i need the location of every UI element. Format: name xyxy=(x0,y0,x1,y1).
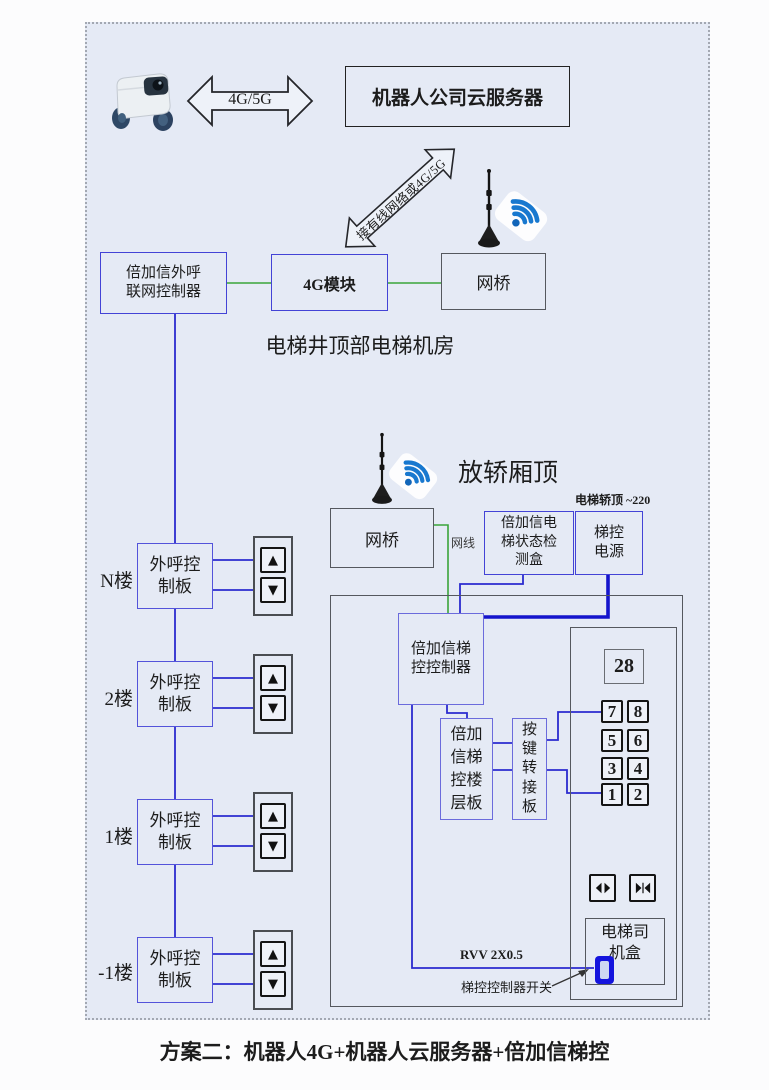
outcall-network-controller-box: 倍加信外呼 联网控制器 xyxy=(100,252,227,314)
down-triangle-icon: ▼ xyxy=(268,840,278,853)
down-call-button-1: ▼ xyxy=(260,833,286,859)
keypad-button-6: 6 xyxy=(627,729,649,752)
keypad-button-2: 2 xyxy=(627,783,649,806)
elevator-power-box: 梯控 电源 xyxy=(575,511,643,575)
keypad-button-3: 3 xyxy=(601,757,623,780)
machine-room-caption: 电梯井顶部电梯机房 xyxy=(250,330,470,360)
up-triangle-icon: ▲ xyxy=(268,672,278,685)
wire-spec-label: RVV 2X0.5 xyxy=(460,947,550,963)
bridge-box-car-top: 网桥 xyxy=(330,508,434,568)
controller-switch xyxy=(595,956,614,984)
down-triangle-icon: ▼ xyxy=(268,978,278,991)
robot-icon xyxy=(106,70,182,134)
floor-label-minus1: -1楼 xyxy=(88,958,133,985)
outcall-board-n: 外呼控 制板 xyxy=(137,543,213,609)
down-triangle-icon: ▼ xyxy=(268,702,278,715)
elevator-controller-box: 倍加信梯 控控制器 xyxy=(398,613,484,705)
open-door-button xyxy=(589,874,616,902)
floor-display: 28 xyxy=(604,649,644,684)
cloud-server-box: 机器人公司云服务器 xyxy=(345,66,570,127)
floor-board-box: 倍加 信梯 控楼 层板 xyxy=(440,718,493,820)
floor-label-2: 2楼 xyxy=(88,684,133,711)
down-call-button-minus1: ▼ xyxy=(260,971,286,997)
up-triangle-icon: ▲ xyxy=(268,948,278,961)
keypad-button-1: 1 xyxy=(601,783,623,806)
down-call-button-n: ▼ xyxy=(260,577,286,603)
cable-label: 网线 xyxy=(451,534,481,551)
module-4g-box: 4G模块 xyxy=(271,254,388,311)
up-call-button-1: ▲ xyxy=(260,803,286,829)
up-call-button-n: ▲ xyxy=(260,547,286,573)
floor-label-n: N楼 xyxy=(88,566,133,593)
up-call-button-minus1: ▲ xyxy=(260,941,286,967)
open-door-icon xyxy=(594,880,612,896)
scheme-caption: 方案二：机器人4G+机器人云服务器+倍加信梯控 xyxy=(0,1036,769,1066)
down-call-button-2: ▼ xyxy=(260,695,286,721)
bridge-box-machine-room: 网桥 xyxy=(441,253,546,310)
outcall-board-minus1: 外呼控 制板 xyxy=(137,937,213,1003)
close-door-icon xyxy=(634,880,652,896)
elevator-status-box: 倍加信电 梯状态检 测盒 xyxy=(484,511,574,575)
switch-label: 梯控控制器开关 xyxy=(461,977,561,996)
keypad-button-8: 8 xyxy=(627,700,649,723)
controller-switch-slot xyxy=(600,961,609,979)
outcall-board-1: 外呼控 制板 xyxy=(137,799,213,865)
key-adapter-box: 按 键 转 接 板 xyxy=(512,718,547,820)
link-4g5g-label: 4G/5G xyxy=(198,91,302,109)
close-door-button xyxy=(629,874,656,902)
outcall-board-2: 外呼控 制板 xyxy=(137,661,213,727)
up-call-button-2: ▲ xyxy=(260,665,286,691)
keypad-button-5: 5 xyxy=(601,729,623,752)
floor-label-1: 1楼 xyxy=(88,822,133,849)
keypad-button-4: 4 xyxy=(627,757,649,780)
up-triangle-icon: ▲ xyxy=(268,554,278,567)
car-top-power-note: 电梯轿顶 ~220 xyxy=(575,491,665,508)
up-triangle-icon: ▲ xyxy=(268,810,278,823)
keypad-button-7: 7 xyxy=(601,700,623,723)
car-top-caption: 放轿厢顶 xyxy=(458,453,568,489)
down-triangle-icon: ▼ xyxy=(268,584,278,597)
